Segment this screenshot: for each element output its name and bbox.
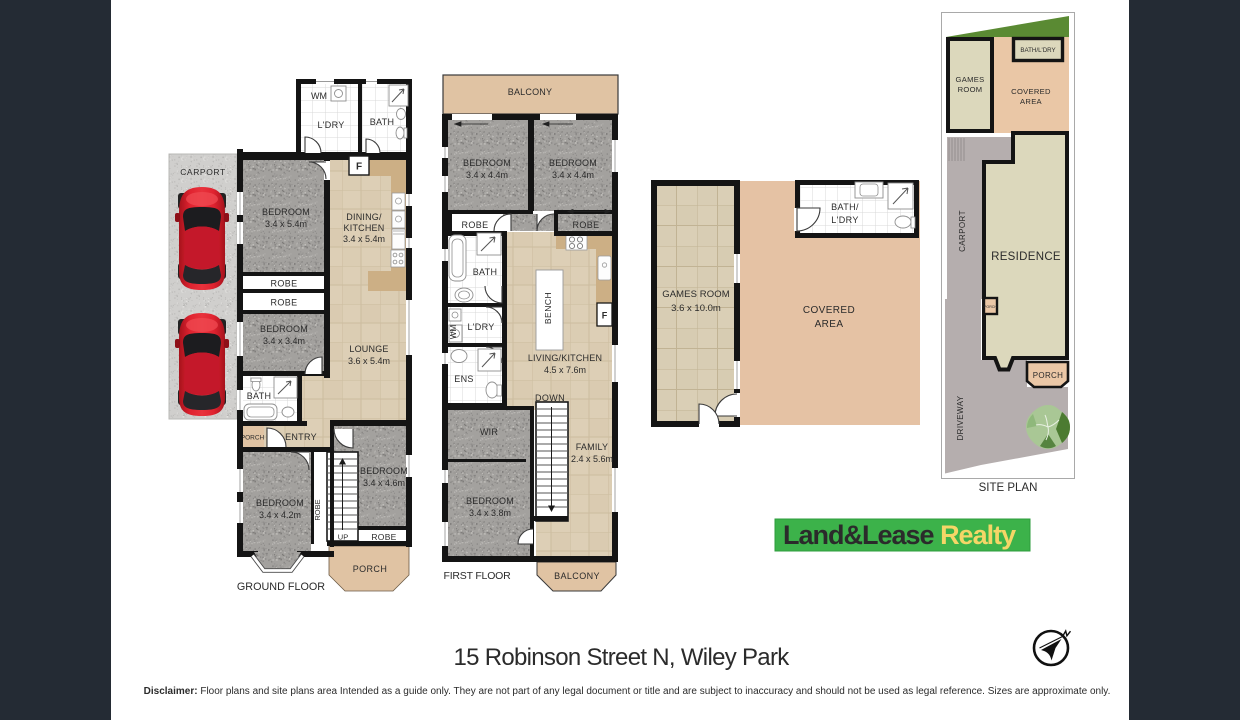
svg-text:DRIVEWAY: DRIVEWAY [956, 395, 965, 440]
svg-text:ENS: ENS [454, 374, 473, 384]
svg-text:PORCH: PORCH [1033, 371, 1063, 380]
svg-text:BEDROOM: BEDROOM [549, 158, 597, 168]
svg-text:ROBE: ROBE [371, 532, 396, 542]
svg-text:GAMES ROOM: GAMES ROOM [662, 289, 730, 300]
svg-text:DOWN: DOWN [535, 393, 565, 403]
svg-text:GAMES: GAMES [956, 75, 985, 84]
svg-text:BALCONY: BALCONY [554, 571, 600, 581]
svg-text:4.5 x 7.6m: 4.5 x 7.6m [544, 365, 586, 375]
svg-text:FIRST FLOOR: FIRST FLOOR [443, 570, 511, 582]
svg-text:ENTRY: ENTRY [285, 432, 317, 442]
svg-text:PORCH: PORCH [984, 305, 997, 309]
svg-text:ROBE: ROBE [572, 220, 599, 230]
svg-text:WM: WM [311, 91, 327, 101]
svg-text:CARPORT: CARPORT [958, 210, 967, 252]
svg-text:L'DRY: L'DRY [831, 215, 859, 225]
svg-text:AREA: AREA [1020, 97, 1043, 106]
svg-text:FAMILY: FAMILY [576, 442, 609, 452]
svg-text:AREA: AREA [815, 319, 844, 330]
svg-text:BALCONY: BALCONY [508, 87, 552, 97]
svg-text:KITCHEN: KITCHEN [344, 223, 385, 233]
svg-text:15 Robinson Street N, Wiley Pa: 15 Robinson Street N, Wiley Park [453, 644, 790, 671]
svg-text:COVERED: COVERED [1011, 87, 1051, 96]
svg-text:BEDROOM: BEDROOM [256, 498, 304, 508]
svg-text:SITE PLAN: SITE PLAN [979, 482, 1038, 494]
svg-text:3.4 x 4.6m: 3.4 x 4.6m [363, 478, 405, 488]
svg-text:L'DRY: L'DRY [317, 120, 344, 130]
svg-text:BEDROOM: BEDROOM [262, 207, 310, 217]
svg-text:L'DRY: L'DRY [467, 322, 494, 332]
svg-text:Land&Lease Realty: Land&Lease Realty [783, 520, 1016, 550]
svg-text:3.4 x 3.8m: 3.4 x 3.8m [469, 508, 511, 518]
svg-text:F: F [356, 162, 362, 173]
svg-text:3.4 x 4.4m: 3.4 x 4.4m [466, 170, 508, 180]
svg-text:ROBE: ROBE [270, 279, 297, 289]
svg-text:PORCH: PORCH [241, 435, 265, 442]
svg-text:3.4 x 4.2m: 3.4 x 4.2m [259, 510, 301, 520]
svg-text:3.4 x 5.4m: 3.4 x 5.4m [265, 219, 307, 229]
svg-text:BATH/L'DRY: BATH/L'DRY [1020, 47, 1055, 54]
svg-text:BATH: BATH [247, 391, 272, 401]
svg-text:WM: WM [449, 325, 458, 340]
svg-text:Disclaimer: Floor plans and si: Disclaimer: Floor plans and site plans a… [144, 686, 1111, 697]
svg-text:ROOM: ROOM [958, 85, 983, 94]
svg-text:LIVING/KITCHEN: LIVING/KITCHEN [528, 353, 602, 363]
svg-text:LOUNGE: LOUNGE [349, 344, 388, 354]
svg-text:BATH: BATH [370, 117, 395, 127]
svg-text:CARPORT: CARPORT [180, 167, 226, 177]
svg-text:BATH: BATH [473, 267, 498, 277]
svg-text:F: F [602, 311, 608, 321]
svg-text:BATH/: BATH/ [831, 202, 859, 212]
svg-text:3.6 x 10.0m: 3.6 x 10.0m [671, 303, 721, 314]
svg-text:BEDROOM: BEDROOM [463, 158, 511, 168]
svg-text:GROUND FLOOR: GROUND FLOOR [237, 581, 325, 593]
svg-text:BENCH: BENCH [543, 292, 553, 324]
svg-text:WIR: WIR [480, 427, 498, 437]
svg-text:PORCH: PORCH [353, 564, 388, 574]
svg-text:BEDROOM: BEDROOM [260, 324, 308, 334]
svg-text:3.4 x 3.4m: 3.4 x 3.4m [263, 336, 305, 346]
svg-text:3.4 x 4.4m: 3.4 x 4.4m [552, 170, 594, 180]
svg-text:3.6 x 5.4m: 3.6 x 5.4m [348, 356, 390, 366]
svg-text:ROBE: ROBE [313, 499, 322, 520]
svg-text:ROBE: ROBE [461, 220, 488, 230]
svg-text:2.4 x 5.6m: 2.4 x 5.6m [571, 454, 613, 464]
svg-text:UP: UP [338, 533, 348, 542]
svg-text:DINING/: DINING/ [346, 212, 382, 222]
svg-text:ROBE: ROBE [270, 298, 297, 308]
svg-text:3.4 x 5.4m: 3.4 x 5.4m [343, 234, 385, 244]
svg-text:COVERED: COVERED [803, 305, 855, 316]
svg-text:BEDROOM: BEDROOM [466, 496, 514, 506]
svg-text:BEDROOM: BEDROOM [360, 466, 408, 476]
svg-text:RESIDENCE: RESIDENCE [991, 251, 1061, 263]
